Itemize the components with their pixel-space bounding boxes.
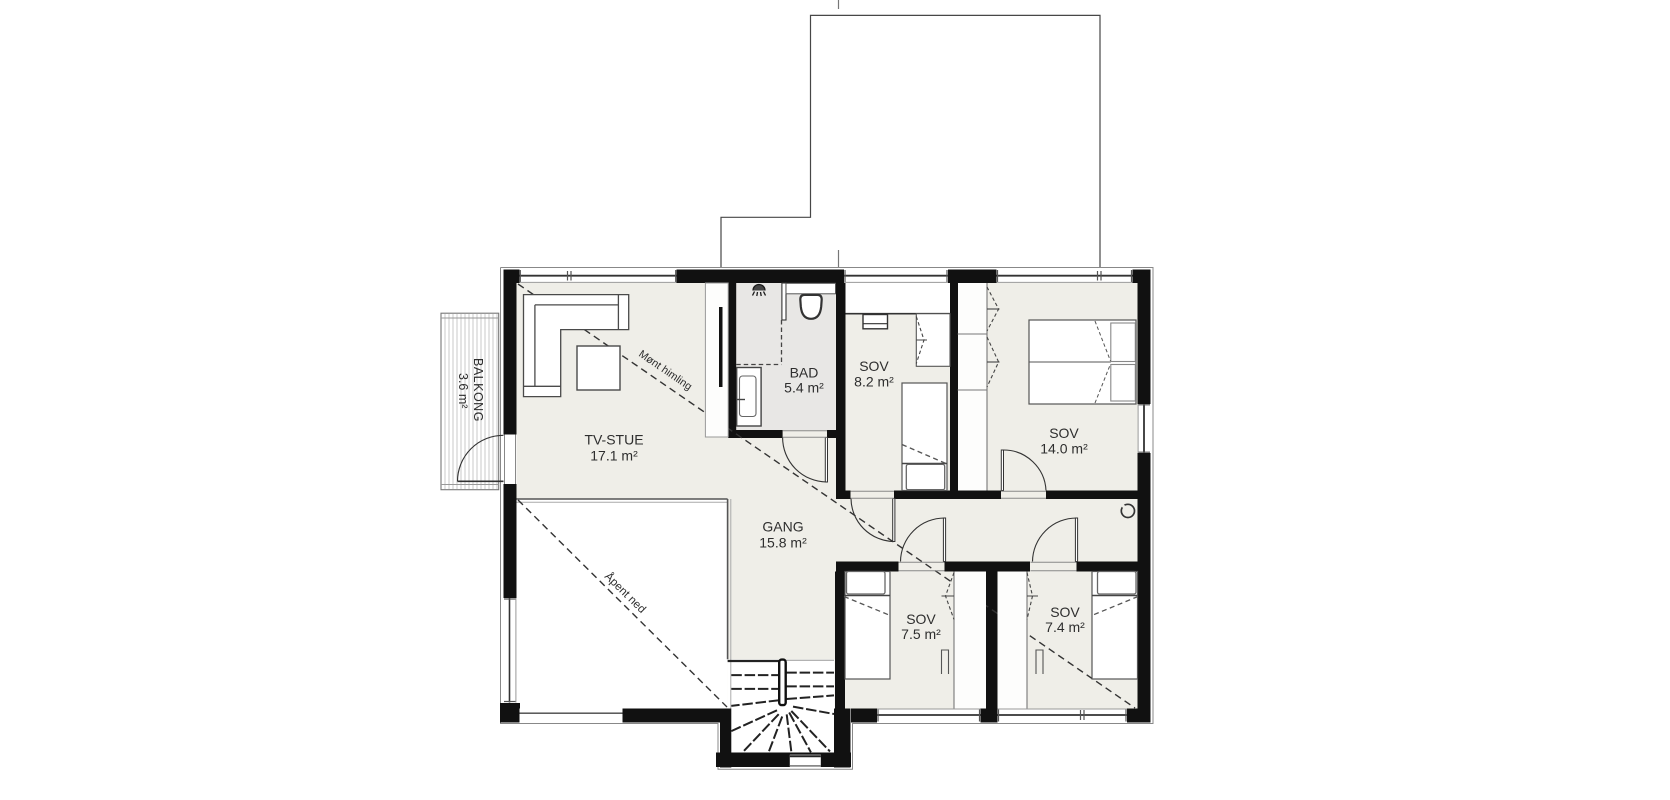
svg-text:SOV: SOV [1050,604,1080,620]
svg-text:SOV: SOV [906,611,936,627]
svg-text:7.4 m²: 7.4 m² [1045,619,1085,635]
svg-text:8.2 m²: 8.2 m² [854,374,894,390]
svg-text:7.5 m²: 7.5 m² [901,626,941,642]
svg-text:SOV: SOV [1049,425,1079,441]
svg-text:5.4 m²: 5.4 m² [784,379,824,395]
svg-text:15.8 m²: 15.8 m² [759,535,807,551]
svg-text:GANG: GANG [762,519,803,535]
svg-text:17.1 m²: 17.1 m² [590,448,638,464]
svg-text:BALKONG: BALKONG [471,358,485,422]
svg-text:TV-STUE: TV-STUE [584,432,643,448]
svg-text:14.0 m²: 14.0 m² [1040,441,1088,457]
svg-text:SOV: SOV [859,358,889,374]
svg-text:3.6 m²: 3.6 m² [456,373,470,408]
svg-text:BAD: BAD [790,364,819,380]
